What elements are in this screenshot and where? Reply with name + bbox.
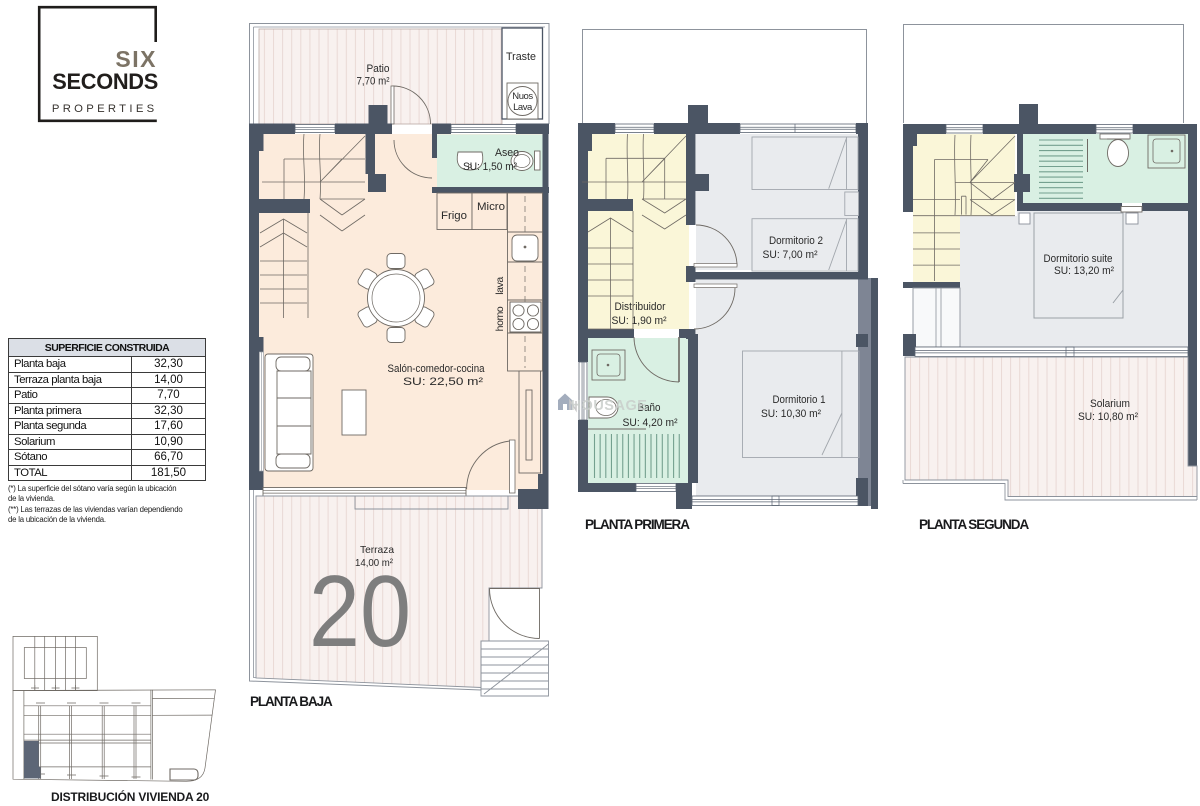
- svg-text:Dormitorio suite: Dormitorio suite: [1044, 253, 1113, 265]
- svg-text:Aseo: Aseo: [495, 147, 519, 159]
- svg-text:HOUSAGE: HOUSAGE: [571, 398, 648, 414]
- svg-text:Solarium: Solarium: [1090, 398, 1130, 410]
- svg-text:7,70 m²: 7,70 m²: [357, 76, 390, 88]
- svg-text:SU: 10,30 m²: SU: 10,30 m²: [761, 408, 821, 420]
- svg-text:Terraza: Terraza: [360, 545, 394, 556]
- svg-text:Dormitorio 1: Dormitorio 1: [773, 394, 826, 406]
- svg-text:SU: 10,80 m²: SU: 10,80 m²: [1078, 411, 1138, 423]
- svg-text:Frigo: Frigo: [441, 210, 467, 222]
- svg-text:SU: 4,20 m²: SU: 4,20 m²: [623, 417, 678, 429]
- svg-text:SU: 1,50 m²: SU: 1,50 m²: [463, 161, 517, 173]
- svg-text:SU: 1,90 m²: SU: 1,90 m²: [612, 315, 667, 327]
- svg-text:Patio: Patio: [367, 63, 390, 75]
- svg-text:Micro: Micro: [477, 201, 505, 213]
- svg-text:horno: horno: [494, 306, 506, 331]
- svg-text:SECONDS: SECONDS: [52, 69, 158, 94]
- svg-text:PROPERTIES: PROPERTIES: [52, 103, 158, 115]
- svg-text:20: 20: [309, 556, 411, 668]
- svg-text:Salón-comedor-cocina: Salón-comedor-cocina: [388, 363, 486, 375]
- svg-text:Nuos: Nuos: [512, 91, 533, 102]
- svg-text:lava: lava: [494, 277, 506, 295]
- svg-text:Dormitorio 2: Dormitorio 2: [769, 235, 823, 247]
- svg-text:Lava: Lava: [513, 102, 533, 113]
- svg-text:SU: 13,20 m²: SU: 13,20 m²: [1054, 265, 1114, 277]
- svg-text:SU: 22,50 m²: SU: 22,50 m²: [403, 376, 483, 388]
- svg-text:Distribuidor: Distribuidor: [615, 301, 666, 313]
- svg-text:Traste: Traste: [506, 51, 536, 63]
- svg-text:SU: 7,00 m²: SU: 7,00 m²: [763, 249, 818, 261]
